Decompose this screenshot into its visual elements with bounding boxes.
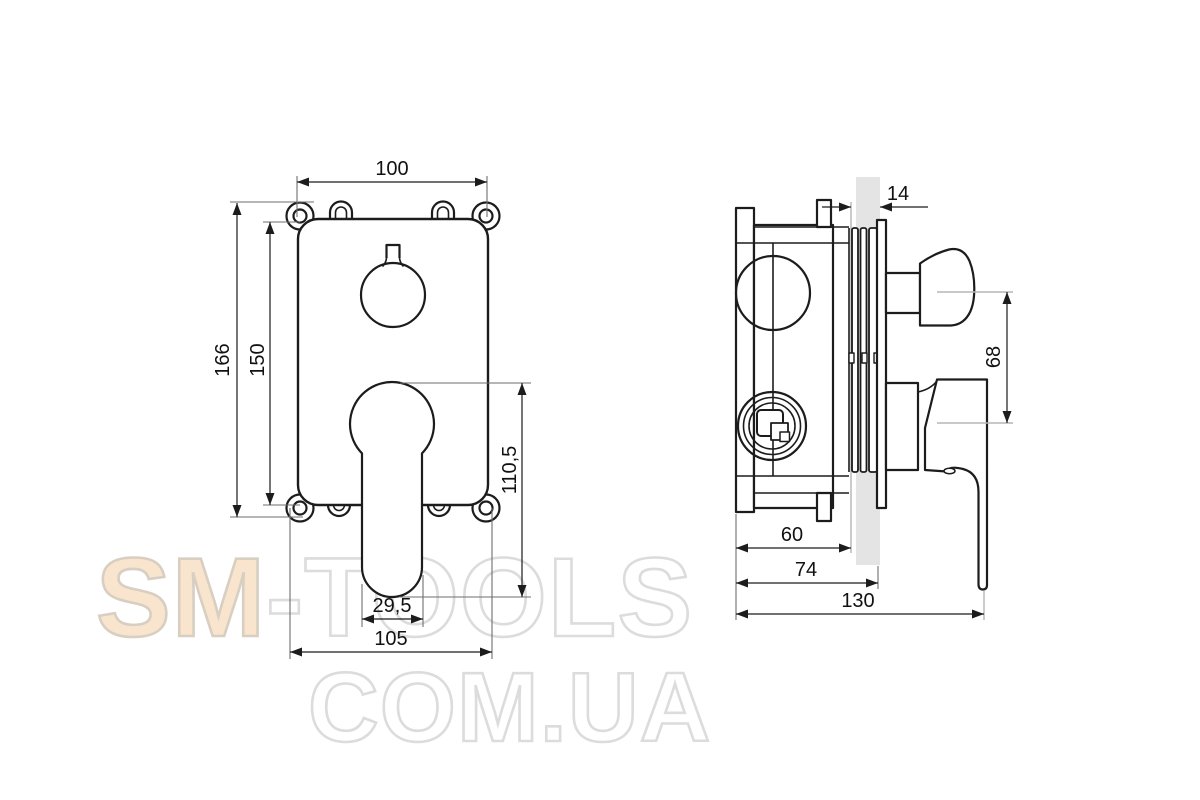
ear-bottom-left-inner (294, 502, 307, 515)
dim-height-plate: 150 (247, 222, 300, 505)
ear-top-right-inner (480, 210, 493, 223)
dim-label-166: 166 (212, 343, 234, 376)
dim-width-top: 100 (297, 158, 487, 217)
mounting-bracket (736, 208, 754, 512)
escutcheon-plate (877, 220, 886, 508)
dim-label-68: 68 (983, 346, 1005, 368)
tab-top-1-inner (336, 207, 347, 219)
dim-label-130: 130 (841, 590, 874, 612)
lever-handle-front (350, 382, 434, 597)
ear-bottom-right-inner (480, 502, 493, 515)
plaster-plate-1 (852, 228, 858, 472)
body-tab-top (817, 200, 831, 227)
lever-button-detail (944, 468, 955, 474)
side-view: 14 68 60 (736, 177, 1013, 620)
dim-label-60: 60 (781, 524, 803, 546)
technical-drawing-canvas: SM-TOOLS COM.UA (0, 0, 1200, 800)
knob-stem (886, 273, 920, 313)
dim-label-100: 100 (375, 158, 408, 180)
dim-label-29-5: 29,5 (373, 595, 412, 617)
lever-stem (886, 383, 918, 470)
front-view: 100 166 150 (212, 158, 531, 659)
dim-label-110-5: 110,5 (499, 446, 521, 495)
diverter-knob-front (361, 263, 425, 327)
dim-label-14: 14 (887, 183, 909, 205)
tab-top-2-inner (438, 207, 449, 219)
plaster-plate-3 (869, 228, 877, 472)
dim-label-150: 150 (247, 343, 269, 376)
tab-top-2 (432, 202, 454, 220)
diverter-knob-side (920, 249, 974, 326)
dim-label-74: 74 (795, 559, 817, 581)
dim-depth-total: 130 (736, 590, 984, 620)
plaster-plate-2 (861, 228, 867, 472)
tab-top-1 (330, 202, 352, 220)
valve-body (754, 225, 833, 508)
dim-label-105: 105 (374, 628, 407, 650)
ear-top-left-inner (294, 210, 307, 223)
lever-handle-side (925, 380, 987, 590)
dim-depth-body: 60 (736, 514, 851, 620)
plate-clip-1 (849, 353, 854, 363)
mixer-technical-drawing: 100 166 150 (0, 0, 1200, 800)
brand-logo-step-3 (780, 432, 790, 442)
plate-clip-2 (862, 353, 867, 363)
body-tab-bottom (817, 493, 831, 521)
